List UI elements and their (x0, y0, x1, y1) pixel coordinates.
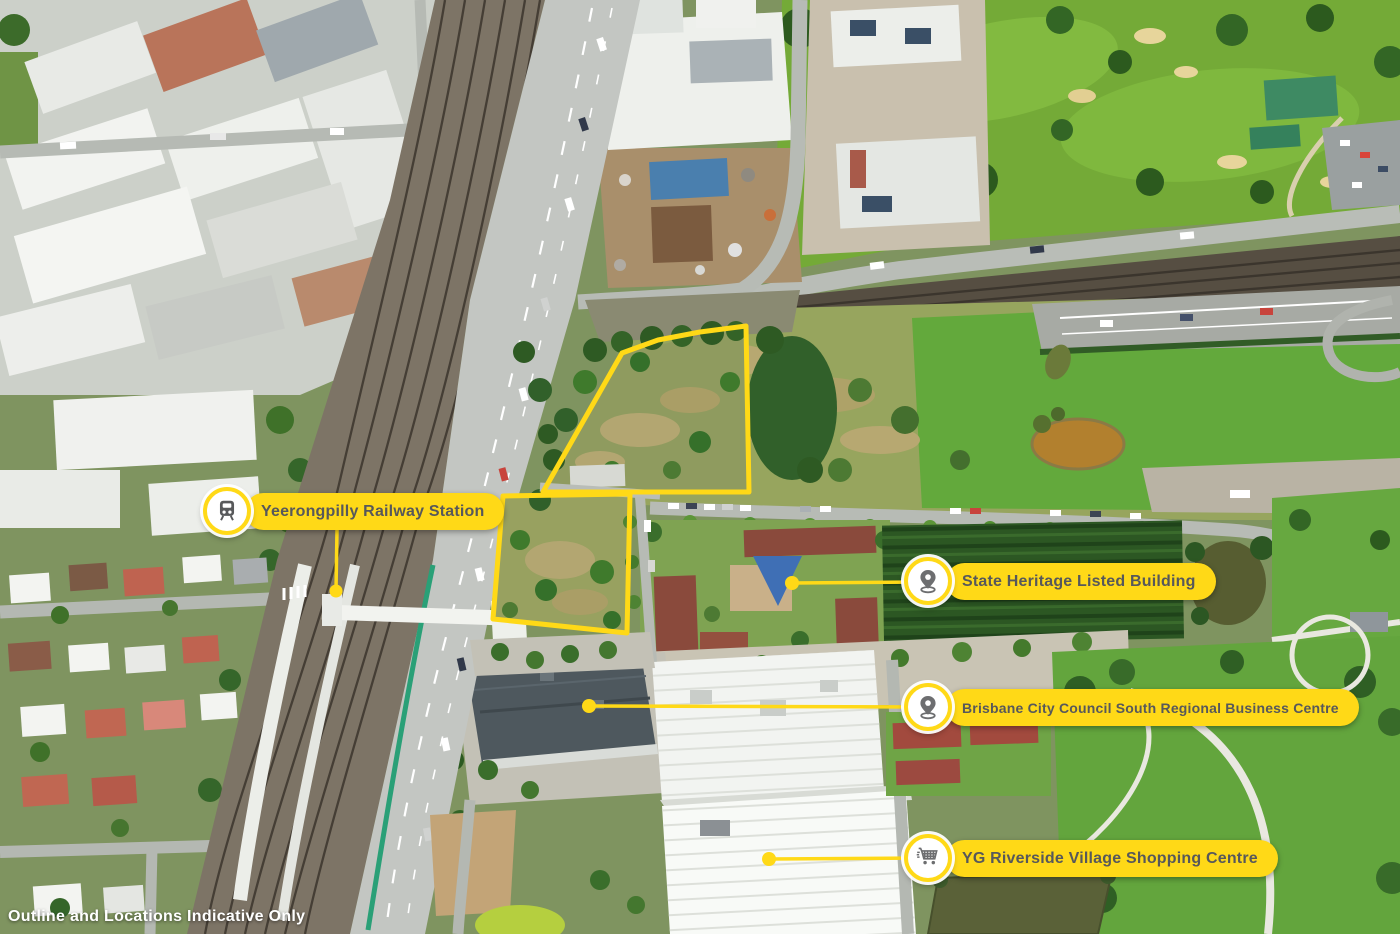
label-pill-heritage: State Heritage Listed Building (946, 563, 1216, 600)
shopping-cart-icon (915, 845, 941, 871)
council-label: Brisbane City Council South Regional Bus… (962, 700, 1339, 716)
aerial-photo (0, 0, 1400, 934)
label-pill-shopping: YG Riverside Village Shopping Centre (946, 840, 1278, 877)
screenshot-root: Yeerongpilly Railway Station State Herit… (0, 0, 1400, 934)
station-badge (203, 487, 251, 535)
council-badge (904, 683, 952, 731)
map-pin-icon (915, 694, 941, 720)
station-marker-dot (330, 585, 343, 598)
shopping-badge (904, 834, 952, 882)
heritage-label: State Heritage Listed Building (962, 573, 1196, 591)
council-marker-dot (582, 699, 596, 713)
station-label: Yeerongpilly Railway Station (261, 503, 484, 521)
shopping-label: YG Riverside Village Shopping Centre (962, 850, 1258, 868)
map-pin-icon (915, 568, 941, 594)
label-pill-station: Yeerongpilly Railway Station (245, 493, 504, 530)
label-pill-council: Brisbane City Council South Regional Bus… (946, 689, 1359, 726)
train-icon (214, 498, 240, 524)
heritage-badge (904, 557, 952, 605)
disclaimer-text: Outline and Locations Indicative Only (8, 908, 305, 926)
shopping-marker-dot (762, 852, 776, 866)
shopping-centre (652, 650, 916, 934)
heritage-marker-dot (785, 576, 799, 590)
